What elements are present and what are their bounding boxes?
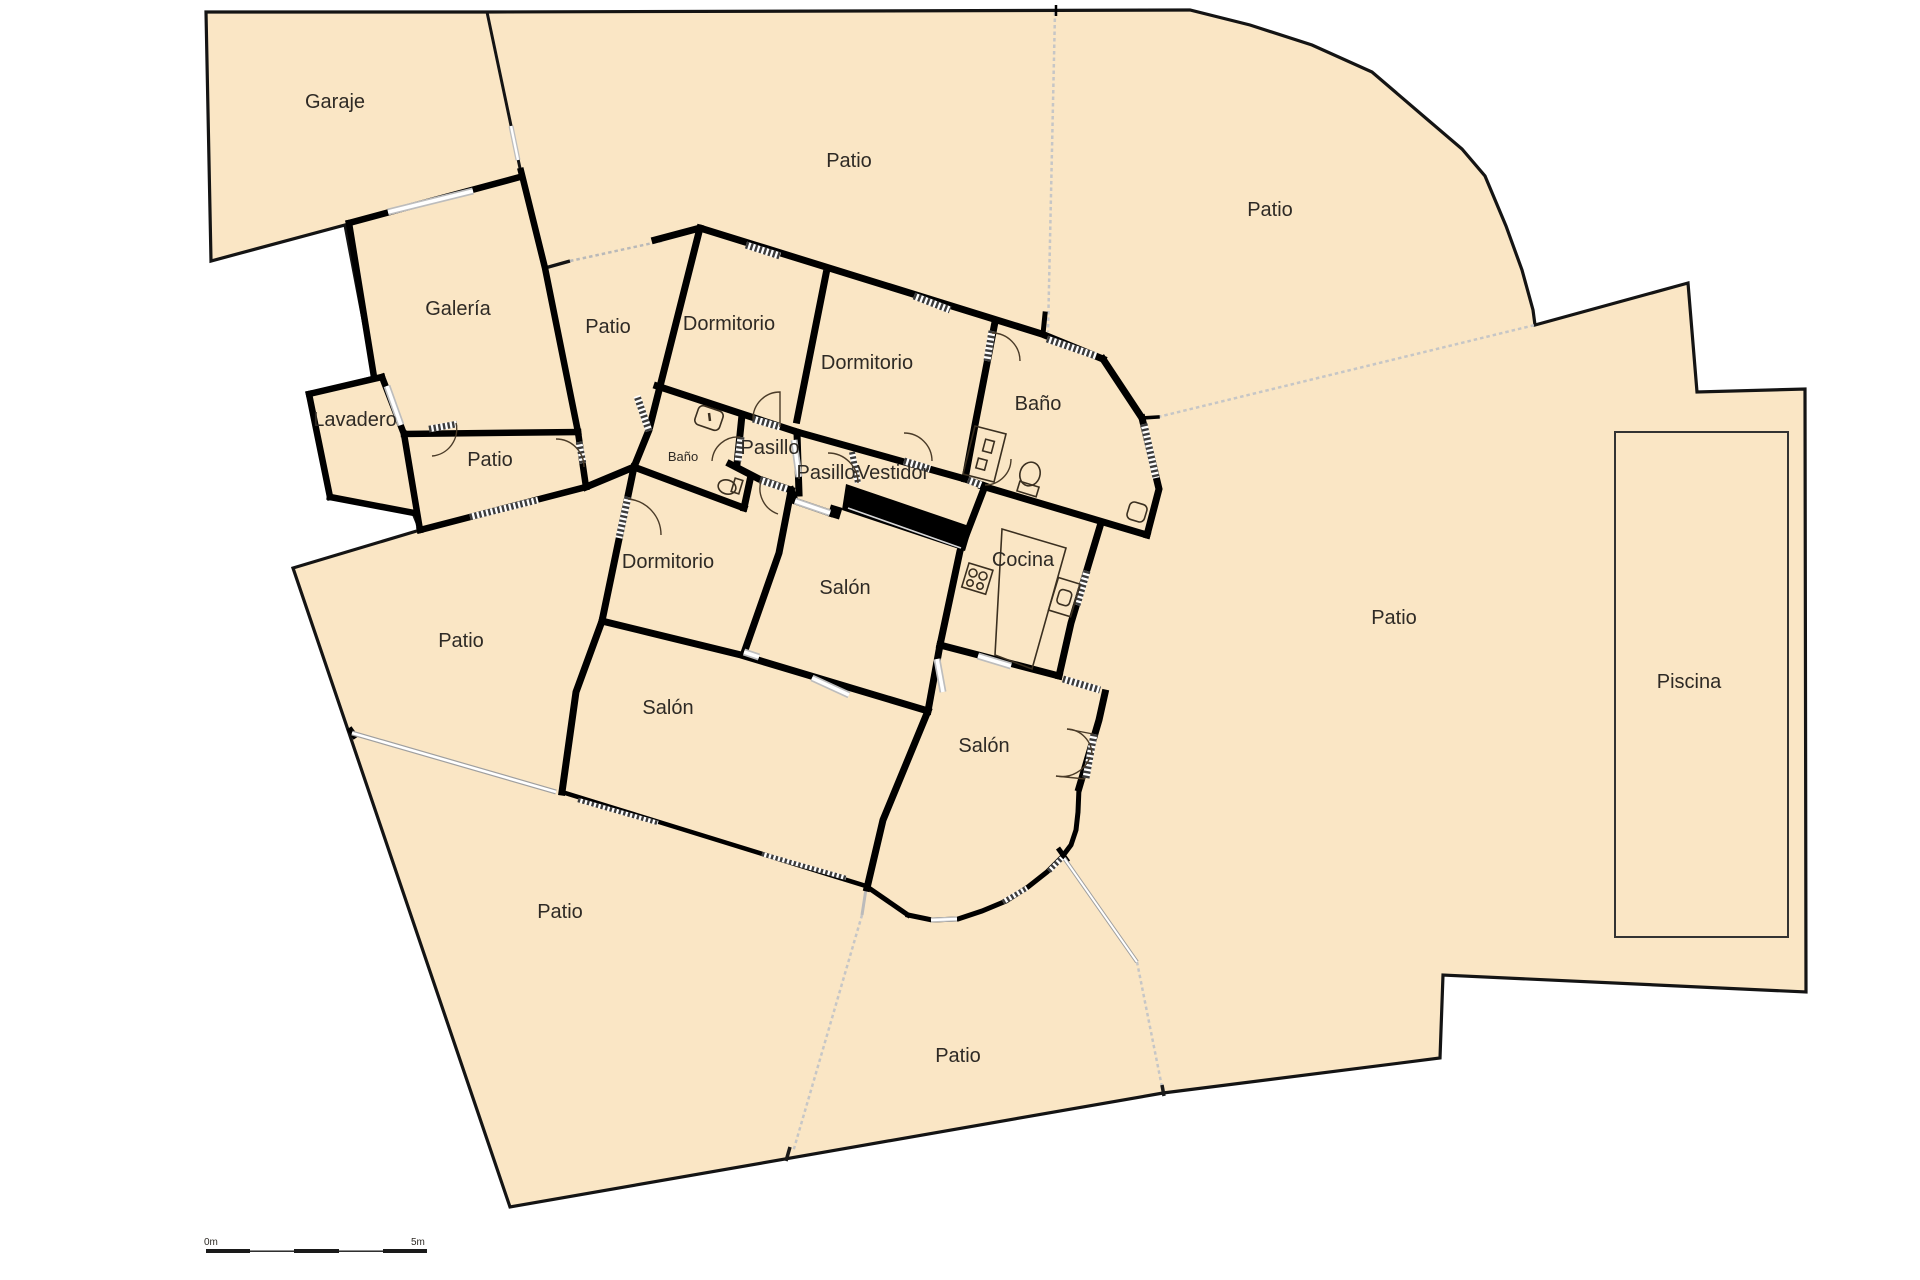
svg-text:Dormitorio: Dormitorio [821,352,913,374]
svg-text:Vestidor: Vestidor [857,462,930,484]
svg-text:Patio: Patio [537,901,583,923]
svg-text:Patio: Patio [1247,199,1293,221]
svg-text:0m: 0m [204,1237,218,1248]
svg-text:Patio: Patio [1371,607,1417,629]
svg-text:Patio: Patio [585,316,631,338]
svg-text:5m: 5m [411,1237,425,1248]
svg-text:Patio: Patio [438,630,484,652]
svg-text:Baño: Baño [1015,393,1062,415]
svg-text:Piscina: Piscina [1657,671,1722,693]
svg-text:Patio: Patio [467,449,513,471]
svg-text:Galería: Galería [425,298,491,320]
svg-text:Garaje: Garaje [305,91,365,113]
svg-text:Cocina: Cocina [992,549,1055,571]
svg-text:Patio: Patio [826,150,872,172]
svg-text:Salón: Salón [642,697,693,719]
svg-text:Pasillo: Pasillo [741,437,800,459]
svg-text:Pasillo: Pasillo [797,462,856,484]
svg-text:Baño: Baño [668,449,698,464]
svg-text:Dormitorio: Dormitorio [683,313,775,335]
svg-text:Lavadero: Lavadero [313,409,396,431]
svg-text:Salón: Salón [819,577,870,599]
svg-text:Patio: Patio [935,1045,981,1067]
svg-text:Salón: Salón [958,735,1009,757]
svg-text:Dormitorio: Dormitorio [622,551,714,573]
